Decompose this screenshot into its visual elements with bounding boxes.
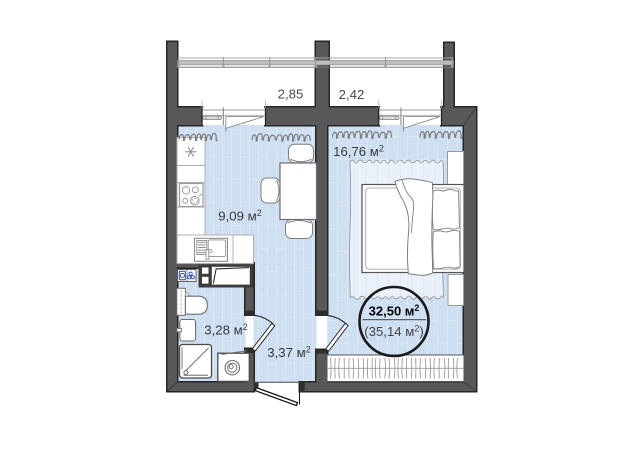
svg-text:16,76 м2: 16,76 м2: [333, 144, 384, 160]
svg-text:2,42: 2,42: [339, 87, 365, 102]
svg-text:3,28 м2: 3,28 м2: [204, 322, 247, 338]
svg-text:3,37 м2: 3,37 м2: [267, 345, 310, 361]
svg-text:2,85: 2,85: [278, 86, 304, 101]
svg-text:32,50 м2: 32,50 м2: [369, 303, 420, 319]
svg-text:9,09 м2: 9,09 м2: [218, 208, 261, 224]
